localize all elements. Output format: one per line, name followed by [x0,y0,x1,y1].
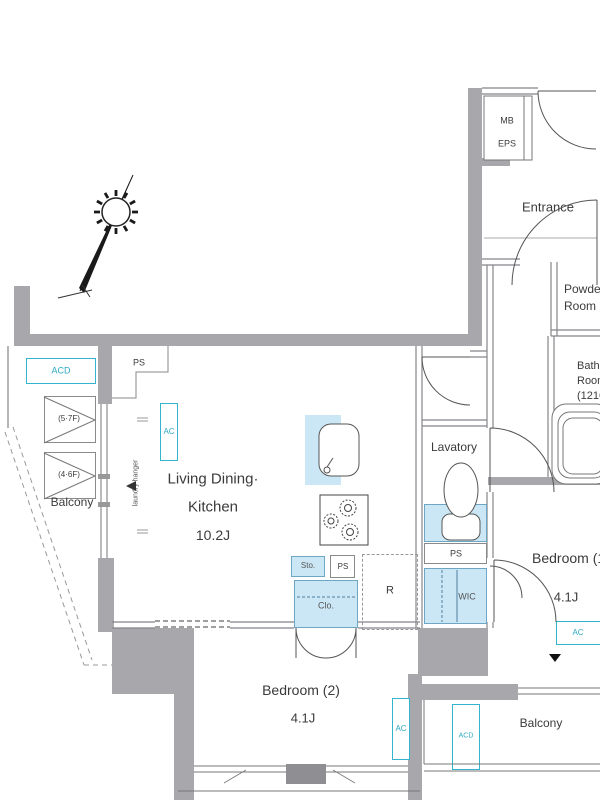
closet-label: Clo. [318,602,334,611]
powder-room-line1: Powder [564,281,600,298]
powder-room-line2: Room [564,298,600,315]
floor-plan: PS MB EPS Entrance Powder Room Bath Room… [0,0,600,800]
lavatory-label: Lavatory [431,441,477,453]
bath-line2: Room [577,374,600,389]
bedroom1-size-label: 4.1J [554,591,579,604]
thin-walls [8,88,600,628]
ac-label-ldk: AC [163,428,174,436]
bedroom2-label: Bedroom (2) [262,683,340,697]
walk-in-closet-box [424,568,487,624]
balcony-label-left: Balcony [51,496,94,508]
ldk-label-line1: Living Dining· [168,472,259,487]
ps-label-kitchen: PS [338,563,349,571]
bedroom2-size-label: 4.1J [291,712,316,725]
bath-line3: (1216) [577,389,600,404]
mb-label: MB [500,117,514,126]
acd-label-right: ACD [459,733,474,740]
entrance-label: Entrance [522,201,574,214]
powder-room-label: Powder Room [564,281,600,315]
compass-icon [58,175,138,298]
bath-line1: Bath [577,359,600,374]
floor-4-6f-label: (4·6F) [58,471,80,479]
toilet-counter-blue [424,504,487,542]
ldk-size-label: 10.2J [196,528,230,542]
sink-counter-blue [305,415,341,485]
ldk-label-line2: Kitchen [188,500,238,515]
ac-label-bedroom2: AC [395,725,406,733]
storage-label: Sto. [301,562,315,570]
laundry-hanger-label: laundry hanger [133,460,140,507]
bath-room-label: Bath Room (1216) [577,359,600,404]
wic-label: WIC [458,593,476,602]
ps-label-ldk: PS [133,359,145,368]
balcony-label-right: Balcony [520,717,563,729]
window-pier-dark [286,764,326,784]
ac-label-bedroom1: AC [572,629,583,637]
acd-label-left: ACD [51,367,70,376]
ps-label-lavatory: PS [450,550,462,559]
eps-label: EPS [498,140,516,149]
refrigerator-label: R [386,586,394,597]
ps-corner-outline [112,346,168,398]
bedroom1-label: Bedroom (1) [532,551,600,565]
floor-5-7f-label: (5·7F) [58,415,80,423]
mb-eps-shaft [484,96,532,160]
